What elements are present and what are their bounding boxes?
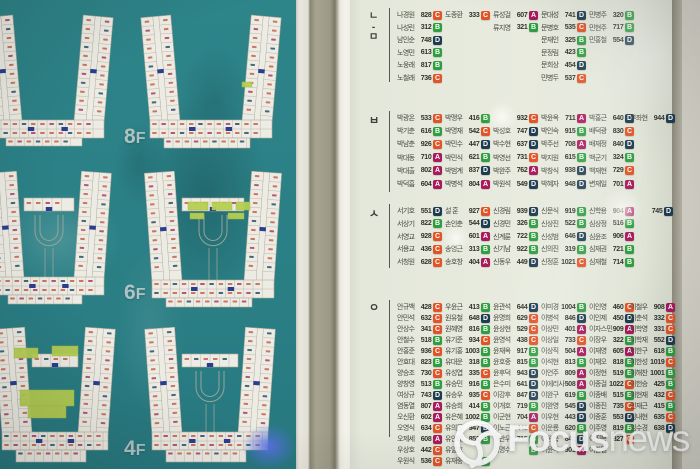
member-name: 서기호 bbox=[397, 206, 421, 216]
directory-entry: 이장우322B bbox=[589, 335, 634, 345]
grade-badge: B bbox=[577, 219, 586, 228]
member-name: 박민수 bbox=[445, 139, 469, 149]
grade-badge: D bbox=[529, 258, 538, 267]
grade-badge: A bbox=[481, 258, 490, 267]
member-name: 우상호 bbox=[397, 445, 421, 455]
grade-badge: A bbox=[577, 380, 586, 389]
directory-entry: 윤후덕943D bbox=[493, 368, 538, 378]
directory-entry: 신정훈1021C bbox=[541, 257, 586, 267]
room-number: 615 bbox=[565, 154, 576, 161]
directory-entry: 윤영석438C bbox=[493, 335, 538, 345]
member-name: 배재정 bbox=[589, 139, 613, 149]
grade-badge: B bbox=[529, 245, 538, 254]
room-number: 904 bbox=[613, 208, 624, 215]
room-number: 948 bbox=[565, 181, 576, 188]
directory-entry: 민병두537C bbox=[541, 73, 586, 83]
member-name: 이운룡 bbox=[541, 423, 565, 433]
grade-badge: C bbox=[577, 258, 586, 267]
room-number: 607 bbox=[517, 12, 528, 19]
room-number: 513 bbox=[421, 381, 432, 388]
directory-entry: 유승민916B bbox=[445, 379, 490, 389]
room-number: 441 bbox=[517, 425, 528, 432]
room-number: 745 bbox=[652, 208, 663, 215]
grade-badge: C bbox=[433, 74, 442, 83]
directory-entry: 박대동710A bbox=[397, 153, 442, 163]
member-name: 이석현 bbox=[541, 357, 565, 367]
room-number: 331 bbox=[654, 326, 665, 333]
member-name: 오제세 bbox=[397, 434, 421, 444]
member-name: 박명재 bbox=[445, 126, 469, 136]
directory-entry: 박민수447D bbox=[445, 139, 490, 149]
directory-entry: 이상민401A bbox=[541, 324, 586, 334]
room-number: 762 bbox=[517, 167, 528, 174]
member-name: 이명수 bbox=[493, 445, 528, 455]
room-number: 719 bbox=[517, 403, 528, 410]
member-name: 신경림 bbox=[493, 206, 517, 216]
directory-entry: 임내현635C bbox=[630, 412, 675, 422]
room-number: 320 bbox=[613, 12, 624, 19]
member-name: 신기남 bbox=[493, 244, 517, 254]
directory-entry: 우상호442C bbox=[397, 445, 442, 455]
member-name: 송호창 bbox=[445, 257, 469, 267]
room-number: 425 bbox=[654, 381, 665, 388]
member-name: 이현재 bbox=[630, 390, 654, 400]
directory-entry: 박광온533C bbox=[397, 113, 442, 123]
directory-entry: 안효대823B bbox=[397, 357, 442, 367]
directory-entry: 유의동947D bbox=[445, 423, 490, 433]
grade-badge: B bbox=[577, 424, 586, 433]
room-number: 943 bbox=[517, 370, 528, 377]
room-number: 648 bbox=[469, 315, 480, 322]
room-number: 852 bbox=[469, 436, 480, 443]
directory-entry: 유은혜1002B bbox=[445, 412, 490, 422]
grade-badge: D bbox=[577, 314, 586, 323]
room-number: 939 bbox=[517, 208, 528, 215]
room-number: 423 bbox=[565, 49, 576, 56]
grade-badge: A bbox=[625, 207, 634, 216]
directory-entry: 이군현704A bbox=[493, 412, 538, 422]
grade-badge: D bbox=[577, 402, 586, 411]
member-name: 윤관석 bbox=[493, 302, 517, 312]
room-number: 1001 bbox=[650, 370, 664, 377]
room-number: 605 bbox=[613, 348, 624, 355]
member-directory: ㄴ-ㅁ나경원828C나성린312B남인순748D노영민613B노웅래817B노철… bbox=[0, 0, 700, 469]
directory-entry: 신학용904A bbox=[589, 206, 634, 216]
room-number: 450 bbox=[613, 315, 624, 322]
room-number: 908 bbox=[654, 304, 665, 311]
directory-entry: 이언주809A bbox=[541, 368, 586, 378]
room-number: 818 bbox=[613, 359, 624, 366]
directory-entry: 유대운318B bbox=[445, 357, 490, 367]
member-name: 이종걸 bbox=[589, 379, 609, 389]
directory-entry: 심재철714B bbox=[589, 257, 634, 267]
room-number: 601 bbox=[469, 233, 480, 240]
directory-entry: 이개호719B bbox=[493, 401, 538, 411]
directory-entry: 우원식536C bbox=[397, 456, 442, 466]
member-name: 양창영 bbox=[397, 379, 421, 389]
directory-entry: 유일호 bbox=[445, 445, 490, 455]
member-name: 염동열 bbox=[397, 401, 421, 411]
member-name: 박지원 bbox=[541, 153, 565, 163]
directory-entry: 박혜자948D bbox=[541, 179, 586, 189]
grade-badge: C bbox=[433, 303, 442, 312]
room-number: 438 bbox=[517, 337, 528, 344]
room-number: 454 bbox=[565, 62, 576, 69]
grade-badge: C bbox=[529, 424, 538, 433]
directory-entry: 인재근415B bbox=[630, 401, 675, 411]
room-number: 553 bbox=[613, 414, 624, 421]
member-name: 박민식 bbox=[445, 153, 469, 163]
room-number: 536 bbox=[421, 458, 432, 465]
directory-entry: 신경민326B bbox=[493, 219, 538, 229]
grade-badge: B bbox=[666, 369, 675, 378]
directory-entry: 601A bbox=[445, 232, 490, 242]
grade-badge: D bbox=[481, 424, 490, 433]
member-name: 문재인 bbox=[541, 35, 565, 45]
room-number: 616 bbox=[421, 128, 432, 135]
room-number: 638 bbox=[654, 425, 665, 432]
directory-entry: 박완주762A bbox=[493, 166, 538, 176]
directory-entry: 배재정840D bbox=[589, 139, 634, 149]
directory-entry: 안민석632C bbox=[397, 313, 442, 323]
room-number: 807 bbox=[421, 403, 432, 410]
directory-entry: 서청원628C bbox=[397, 257, 442, 267]
grade-badge: D bbox=[481, 219, 490, 228]
directory-entry: 이춘석332C bbox=[630, 313, 675, 323]
room-number: 809 bbox=[565, 370, 576, 377]
grade-badge: B bbox=[666, 402, 675, 411]
room-number: 602 bbox=[421, 414, 432, 421]
directory-entry: 이한성1019C bbox=[630, 357, 675, 367]
member-name: 이종진 bbox=[589, 401, 613, 411]
member-name: 박인숙 bbox=[541, 126, 565, 136]
directory-entry: 임수경638D bbox=[630, 423, 675, 433]
grade-badge: A bbox=[577, 446, 586, 455]
member-name: 이한성 bbox=[630, 357, 650, 367]
member-name: 윤명희 bbox=[493, 313, 517, 323]
member-name: 심재철 bbox=[589, 257, 613, 267]
grade-badge: C bbox=[433, 114, 442, 123]
member-name: 백군기 bbox=[589, 153, 613, 163]
grade-badge: C bbox=[666, 413, 675, 422]
directory-entry: 신상진522B bbox=[541, 219, 586, 229]
room-number: 319 bbox=[565, 246, 576, 253]
room-number: 822 bbox=[421, 220, 432, 227]
room-number: 442 bbox=[421, 447, 432, 454]
grade-badge: B bbox=[433, 48, 442, 57]
grade-badge: A bbox=[433, 153, 442, 162]
member-name: 여상규 bbox=[397, 390, 421, 400]
room-number: 714 bbox=[613, 259, 624, 266]
room-number: 313 bbox=[469, 246, 480, 253]
directory-entry: 신동우449D bbox=[493, 257, 538, 267]
directory-entry: 부좌현944D bbox=[630, 113, 675, 123]
member-name: 임수경 bbox=[630, 423, 654, 433]
directory-entry: 문재인325B bbox=[541, 35, 586, 45]
grade-badge: D bbox=[577, 11, 586, 20]
directory-entry: 민홍철554D bbox=[589, 35, 634, 45]
member-name: 신계륜 bbox=[493, 232, 517, 242]
member-name: 부좌현 bbox=[630, 113, 654, 123]
room-number: 508 bbox=[565, 381, 576, 388]
directory-entry: 윤상현529C bbox=[493, 324, 538, 334]
grade-badge: B bbox=[481, 303, 490, 312]
directory-entry: 심상정516B bbox=[589, 219, 634, 229]
directory-entry: 여상규743D bbox=[397, 390, 442, 400]
room-number: 640 bbox=[613, 115, 624, 122]
member-name: 이우현 bbox=[541, 412, 565, 422]
grade-badge: A bbox=[433, 413, 442, 422]
room-number: 928 bbox=[421, 233, 432, 240]
directory-entry: 이현재432C bbox=[630, 390, 675, 400]
grade-badge: A bbox=[433, 402, 442, 411]
directory-entry: 745D bbox=[646, 206, 673, 216]
room-number: 915 bbox=[565, 128, 576, 135]
member-name: 도종환 bbox=[445, 10, 469, 20]
directory-entry: 이인제450D bbox=[589, 313, 634, 323]
room-number: 733 bbox=[565, 337, 576, 344]
directory-entry: 박수현637D bbox=[493, 139, 538, 149]
member-name: 신경민 bbox=[493, 219, 517, 229]
directory-entry: 이학재552D bbox=[630, 335, 675, 345]
member-name: 원혜영 bbox=[445, 324, 469, 334]
member-name: 원유철 bbox=[445, 313, 469, 323]
directory-entry: 유기홍1003B bbox=[445, 346, 490, 356]
directory-entry: 심윤조906A bbox=[589, 232, 634, 242]
room-number: 747 bbox=[517, 128, 528, 135]
directory-entry: 이재영605A bbox=[589, 346, 634, 356]
directory-entry: 이종진735C bbox=[589, 401, 634, 411]
grade-badge: D bbox=[577, 435, 586, 444]
room-number: 529 bbox=[517, 326, 528, 333]
section-divider bbox=[389, 204, 390, 268]
member-name: 문정림 bbox=[541, 48, 565, 58]
grade-badge: D bbox=[529, 369, 538, 378]
room-number: 333 bbox=[469, 12, 480, 19]
directory-entry: 신경림939D bbox=[493, 206, 538, 216]
grade-badge: D bbox=[481, 140, 490, 149]
directory-entry: 이헌승425B bbox=[630, 379, 675, 389]
grade-badge: D bbox=[433, 207, 442, 216]
member-name: 유승우 bbox=[445, 390, 469, 400]
grade-badge: C bbox=[529, 336, 538, 345]
directory-entry: 나경원828C bbox=[397, 10, 442, 20]
member-name: 이인제 bbox=[589, 313, 613, 323]
member-name: 나경원 bbox=[397, 10, 421, 20]
member-name: 박광온 bbox=[397, 113, 421, 123]
directory-entry: 염동열807A bbox=[397, 401, 442, 411]
room-number: 552 bbox=[654, 337, 665, 344]
directory-entry: 신의진319B bbox=[541, 244, 586, 254]
room-number: 322 bbox=[613, 337, 624, 344]
member-name: 윤후덕 bbox=[493, 368, 517, 378]
grade-badge: A bbox=[433, 435, 442, 444]
grade-badge: B bbox=[577, 391, 586, 400]
room-number: 701 bbox=[613, 181, 624, 188]
grade-badge: B bbox=[433, 23, 442, 32]
grade-badge: D bbox=[529, 391, 538, 400]
directory-entry: 박창식938D bbox=[541, 166, 586, 176]
directory-entry: 오제세608A bbox=[397, 434, 442, 444]
directory-entry: 오신환602A bbox=[397, 412, 442, 422]
member-name: 이해찬 bbox=[630, 368, 650, 378]
member-name: 이원욱 bbox=[541, 434, 565, 444]
room-number: 620 bbox=[565, 425, 576, 432]
room-number: 919 bbox=[565, 208, 576, 215]
room-number: 731 bbox=[517, 154, 528, 161]
grade-badge: D bbox=[577, 232, 586, 241]
member-name: 신학용 bbox=[589, 206, 613, 216]
room-number: 504 bbox=[565, 348, 576, 355]
member-name: 인재근 bbox=[630, 401, 654, 411]
grade-badge: A bbox=[433, 166, 442, 175]
grade-badge: C bbox=[433, 446, 442, 455]
directory-entry: 류지영321B bbox=[493, 23, 538, 33]
room-number: 827 bbox=[613, 436, 624, 443]
member-name: 신정훈 bbox=[541, 257, 561, 267]
section-divider bbox=[389, 300, 390, 437]
room-number: 428 bbox=[421, 304, 432, 311]
room-number: 551 bbox=[421, 208, 432, 215]
directory-entry: 유승우935C bbox=[445, 390, 490, 400]
grade-badge: A bbox=[529, 413, 538, 422]
directory-entry: 오영식634C bbox=[397, 423, 442, 433]
room-number: 545 bbox=[565, 403, 576, 410]
section-divider bbox=[389, 111, 390, 192]
room-number: 802 bbox=[421, 167, 432, 174]
room-number: 646 bbox=[565, 233, 576, 240]
grade-badge: B bbox=[529, 435, 538, 444]
room-number: 447 bbox=[469, 141, 480, 148]
room-number: 341 bbox=[421, 326, 432, 333]
grade-badge: D bbox=[625, 36, 634, 45]
directory-entry: 이종배515B bbox=[589, 390, 634, 400]
grade-badge: B bbox=[577, 153, 586, 162]
room-number: 533 bbox=[421, 115, 432, 122]
directory-entry: 이인영460C bbox=[589, 302, 634, 312]
grade-badge: B bbox=[577, 48, 586, 57]
directory-entry: 이에리사508A bbox=[541, 379, 586, 389]
directory-entry: 우윤근413B bbox=[445, 302, 490, 312]
grade-badge: C bbox=[625, 166, 634, 175]
room-number: 554 bbox=[613, 37, 624, 44]
grade-badge: B bbox=[577, 303, 586, 312]
grade-badge: C bbox=[666, 314, 675, 323]
directory-entry: 박윤옥711A bbox=[541, 113, 586, 123]
room-number: 604 bbox=[421, 181, 432, 188]
room-number: 710 bbox=[421, 154, 432, 161]
section-divider bbox=[389, 8, 390, 82]
member-name: 이상민 bbox=[541, 324, 565, 334]
grade-badge: D bbox=[577, 413, 586, 422]
member-name: 박덕흠 bbox=[397, 179, 421, 189]
member-name: 박성호 bbox=[493, 126, 517, 136]
directory-entry: 박영선731C bbox=[493, 153, 538, 163]
member-name: 박대동 bbox=[397, 153, 421, 163]
directory-entry: 이강후847D bbox=[493, 390, 538, 400]
directory-entry: 이노근441C bbox=[493, 423, 538, 433]
room-number: 414 bbox=[469, 403, 480, 410]
grade-badge: B bbox=[625, 245, 634, 254]
grade-badge: B bbox=[529, 402, 538, 411]
grade-badge: B bbox=[433, 219, 442, 228]
member-name: 이완영 bbox=[541, 401, 565, 411]
member-name: 이주영 bbox=[589, 423, 613, 433]
directory-entry: 문정림423B bbox=[541, 48, 586, 58]
grade-badge: B bbox=[529, 358, 538, 367]
member-name: 신동우 bbox=[493, 257, 517, 267]
grade-badge: A bbox=[433, 180, 442, 189]
directory-entry: 이종걸1022C bbox=[589, 379, 634, 389]
member-name: 이진복 bbox=[589, 434, 613, 444]
grade-badge: D bbox=[529, 380, 538, 389]
room-number: 721 bbox=[613, 246, 624, 253]
member-name: 설 훈 bbox=[445, 206, 469, 216]
room-number: 935 bbox=[469, 392, 480, 399]
member-name: 박범계 bbox=[445, 166, 469, 176]
grade-badge: C bbox=[433, 457, 442, 466]
room-number: 932 bbox=[517, 115, 528, 122]
grade-badge: D bbox=[433, 36, 442, 45]
member-name: 서청원 bbox=[397, 257, 421, 267]
member-name: 이미경 bbox=[541, 302, 561, 312]
grade-badge: B bbox=[577, 245, 586, 254]
grade-badge: B bbox=[481, 413, 490, 422]
grade-badge: D bbox=[481, 314, 490, 323]
directory-entry: 이명수B bbox=[493, 445, 538, 455]
member-name: 신문식 bbox=[541, 206, 565, 216]
grade-badge: A bbox=[577, 347, 586, 356]
grade-badge: B bbox=[481, 435, 490, 444]
member-name: 이종배 bbox=[589, 390, 613, 400]
room-number: 613 bbox=[421, 49, 432, 56]
directory-entry: 이상일733C bbox=[541, 335, 586, 345]
room-number: 326 bbox=[517, 220, 528, 227]
room-number: 926 bbox=[421, 141, 432, 148]
room-number: 335 bbox=[469, 370, 480, 377]
directory-entry: 류성걸607A bbox=[493, 10, 538, 20]
room-number: 743 bbox=[421, 392, 432, 399]
room-number: 815 bbox=[517, 359, 528, 366]
directory-entry: 이상직504A bbox=[541, 346, 586, 356]
member-name: 박기춘 bbox=[397, 126, 421, 136]
directory-entry: 이진복827C bbox=[589, 434, 634, 444]
directory-entry: 문병호535C bbox=[541, 23, 586, 33]
member-name: 류성걸 bbox=[493, 10, 517, 20]
room-number: 542 bbox=[469, 128, 480, 135]
grade-badge: C bbox=[666, 325, 675, 334]
grade-badge: C bbox=[577, 23, 586, 32]
room-number: 1003 bbox=[465, 348, 479, 355]
grade-badge: A bbox=[577, 140, 586, 149]
member-name: 윤재옥 bbox=[493, 346, 517, 356]
room-number: 846 bbox=[565, 315, 576, 322]
grade-badge: D bbox=[577, 166, 586, 175]
directory-entry: 이윤석901A bbox=[541, 445, 586, 455]
member-name: 류지영 bbox=[493, 23, 517, 33]
member-name: 서용교 bbox=[397, 244, 421, 254]
member-name: 오신환 bbox=[397, 412, 421, 422]
directory-entry: 도종환333C bbox=[445, 10, 490, 20]
directory-entry: 노웅래817B bbox=[397, 60, 442, 70]
member-name: 박남춘 bbox=[397, 139, 421, 149]
directory-entry: 유성엽335C bbox=[445, 368, 490, 378]
grade-badge: C bbox=[529, 314, 538, 323]
directory-entry: 이재오818B bbox=[589, 357, 634, 367]
member-name: 안민석 bbox=[397, 313, 421, 323]
directory-entry: 박덕흠604A bbox=[397, 179, 442, 189]
directory-entry: 이석현813B bbox=[541, 357, 586, 367]
